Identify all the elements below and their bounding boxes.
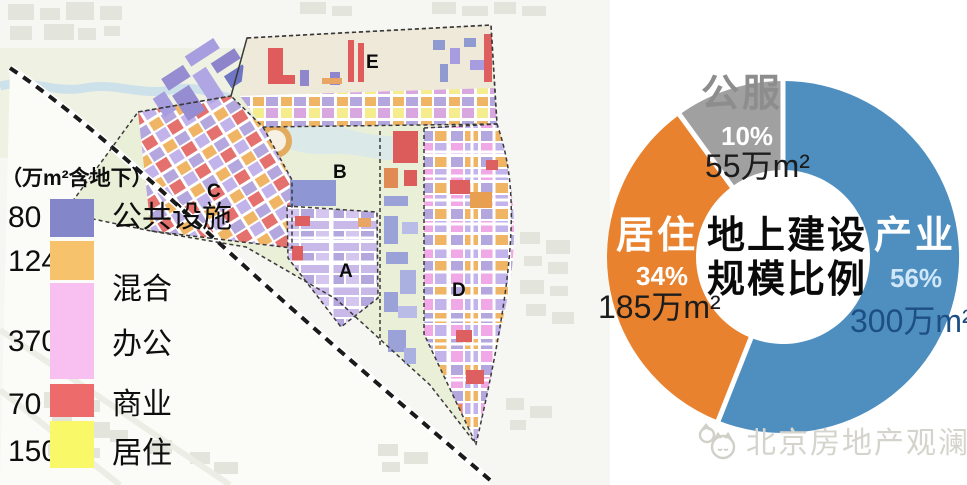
legend-title: （万m²含地下）: [1, 168, 153, 189]
donut-pct-industry: 56%: [890, 265, 942, 291]
legend-swatch-office: [50, 283, 94, 379]
donut-pct-residential: 34%: [636, 263, 688, 289]
donut-label-residential: 居住: [616, 217, 698, 255]
donut-amount-residential: 185万m²: [598, 291, 721, 323]
donut-amount-public: 55万m²: [705, 150, 810, 182]
legend-swatch-mixed: [50, 241, 94, 280]
legend-value-commercial: 70: [8, 390, 41, 420]
watermark-text: 北京房地产观澜: [746, 429, 967, 459]
zone-label-d: D: [452, 281, 466, 300]
donut-center-line1: 地上建设: [707, 214, 867, 258]
zone-label-a: A: [339, 262, 353, 281]
donut-amount-industry: 300万m²: [850, 305, 967, 337]
donut-pct-public: 10%: [721, 123, 773, 149]
zone-label-e: E: [366, 53, 379, 72]
legend-swatch-residential: [50, 421, 94, 468]
legend-label-commercial: 商业: [112, 390, 172, 420]
donut-center-line2: 规模比例: [707, 258, 867, 302]
zone-label-c: C: [207, 182, 221, 201]
watermark: 北京房地产观澜: [694, 422, 967, 466]
legend-label-office: 办公: [112, 330, 172, 360]
legend-swatch-commercial: [50, 384, 94, 417]
legend-value-public: 80: [8, 203, 41, 233]
zone-a-big-building: [290, 180, 336, 206]
donut-label-public: 公服: [701, 75, 783, 113]
donut-center-title: 地上建设 规模比例: [707, 214, 867, 302]
legend-label-mixed: 混合: [112, 275, 172, 305]
legend-label-residential: 居住: [112, 439, 172, 469]
infographic-canvas: （万m²含地下） 80 124 370 70 150 公共设施 混合 办公 商业…: [0, 0, 967, 485]
zone-label-b: B: [333, 163, 347, 182]
donut-label-industry: 产业: [874, 217, 956, 255]
legend-swatch-public: [50, 199, 94, 237]
legend-label-public: 公共设施: [112, 203, 232, 233]
watermark-cat-icon: [694, 422, 740, 466]
